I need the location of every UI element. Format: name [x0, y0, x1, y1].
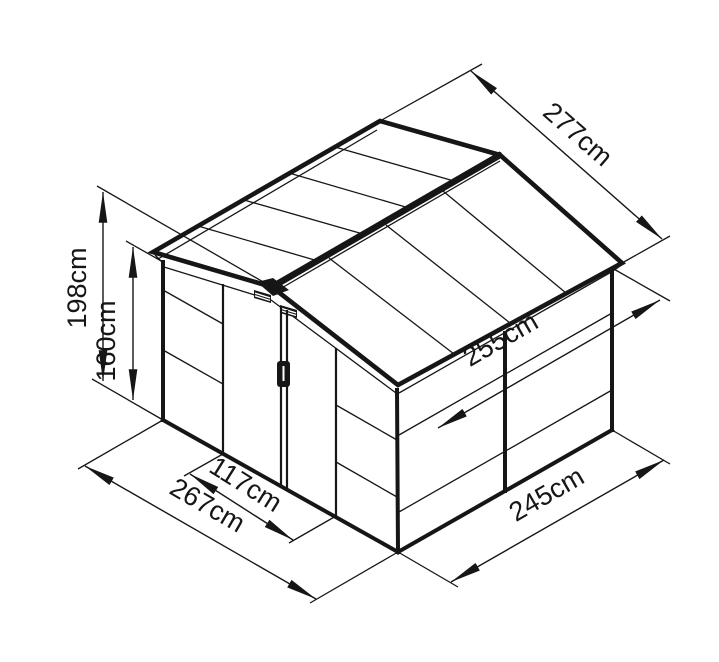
dimension-side-depth: 245cm	[398, 430, 670, 587]
dimension-label-wall-height: 160cm	[91, 300, 121, 381]
dimension-label-ridge-height: 198cm	[62, 247, 92, 328]
extension-line	[380, 64, 482, 121]
dimension-front-width: 267cm	[78, 420, 398, 603]
front-right-corner	[397, 390, 398, 552]
extension-line	[398, 552, 458, 587]
ridge-line	[272, 155, 500, 287]
extension-line	[612, 268, 670, 301]
dimension-label-roof-depth: 277cm	[537, 96, 618, 172]
extension-line	[612, 430, 670, 464]
front-gable	[155, 255, 396, 393]
door-handle	[277, 361, 290, 387]
dimension-roof-depth: 277cm	[380, 64, 670, 263]
dimension-wall-height: 160cm	[91, 241, 163, 400]
right-back-corner	[612, 263, 622, 430]
extension-line	[78, 420, 163, 469]
extension-line	[289, 516, 336, 543]
dimension-inner-width: 255cm	[438, 268, 670, 428]
front-left-panel-seams	[163, 290, 223, 384]
shed-technical-drawing: 198cm 160cm 277cm 255cm 117cm 267cm	[0, 0, 719, 662]
extension-line	[310, 552, 398, 603]
front-right-panel-seams	[336, 405, 397, 497]
extension-line	[92, 379, 163, 420]
extension-line	[622, 236, 670, 263]
dimension-label-side-depth: 245cm	[504, 461, 589, 528]
